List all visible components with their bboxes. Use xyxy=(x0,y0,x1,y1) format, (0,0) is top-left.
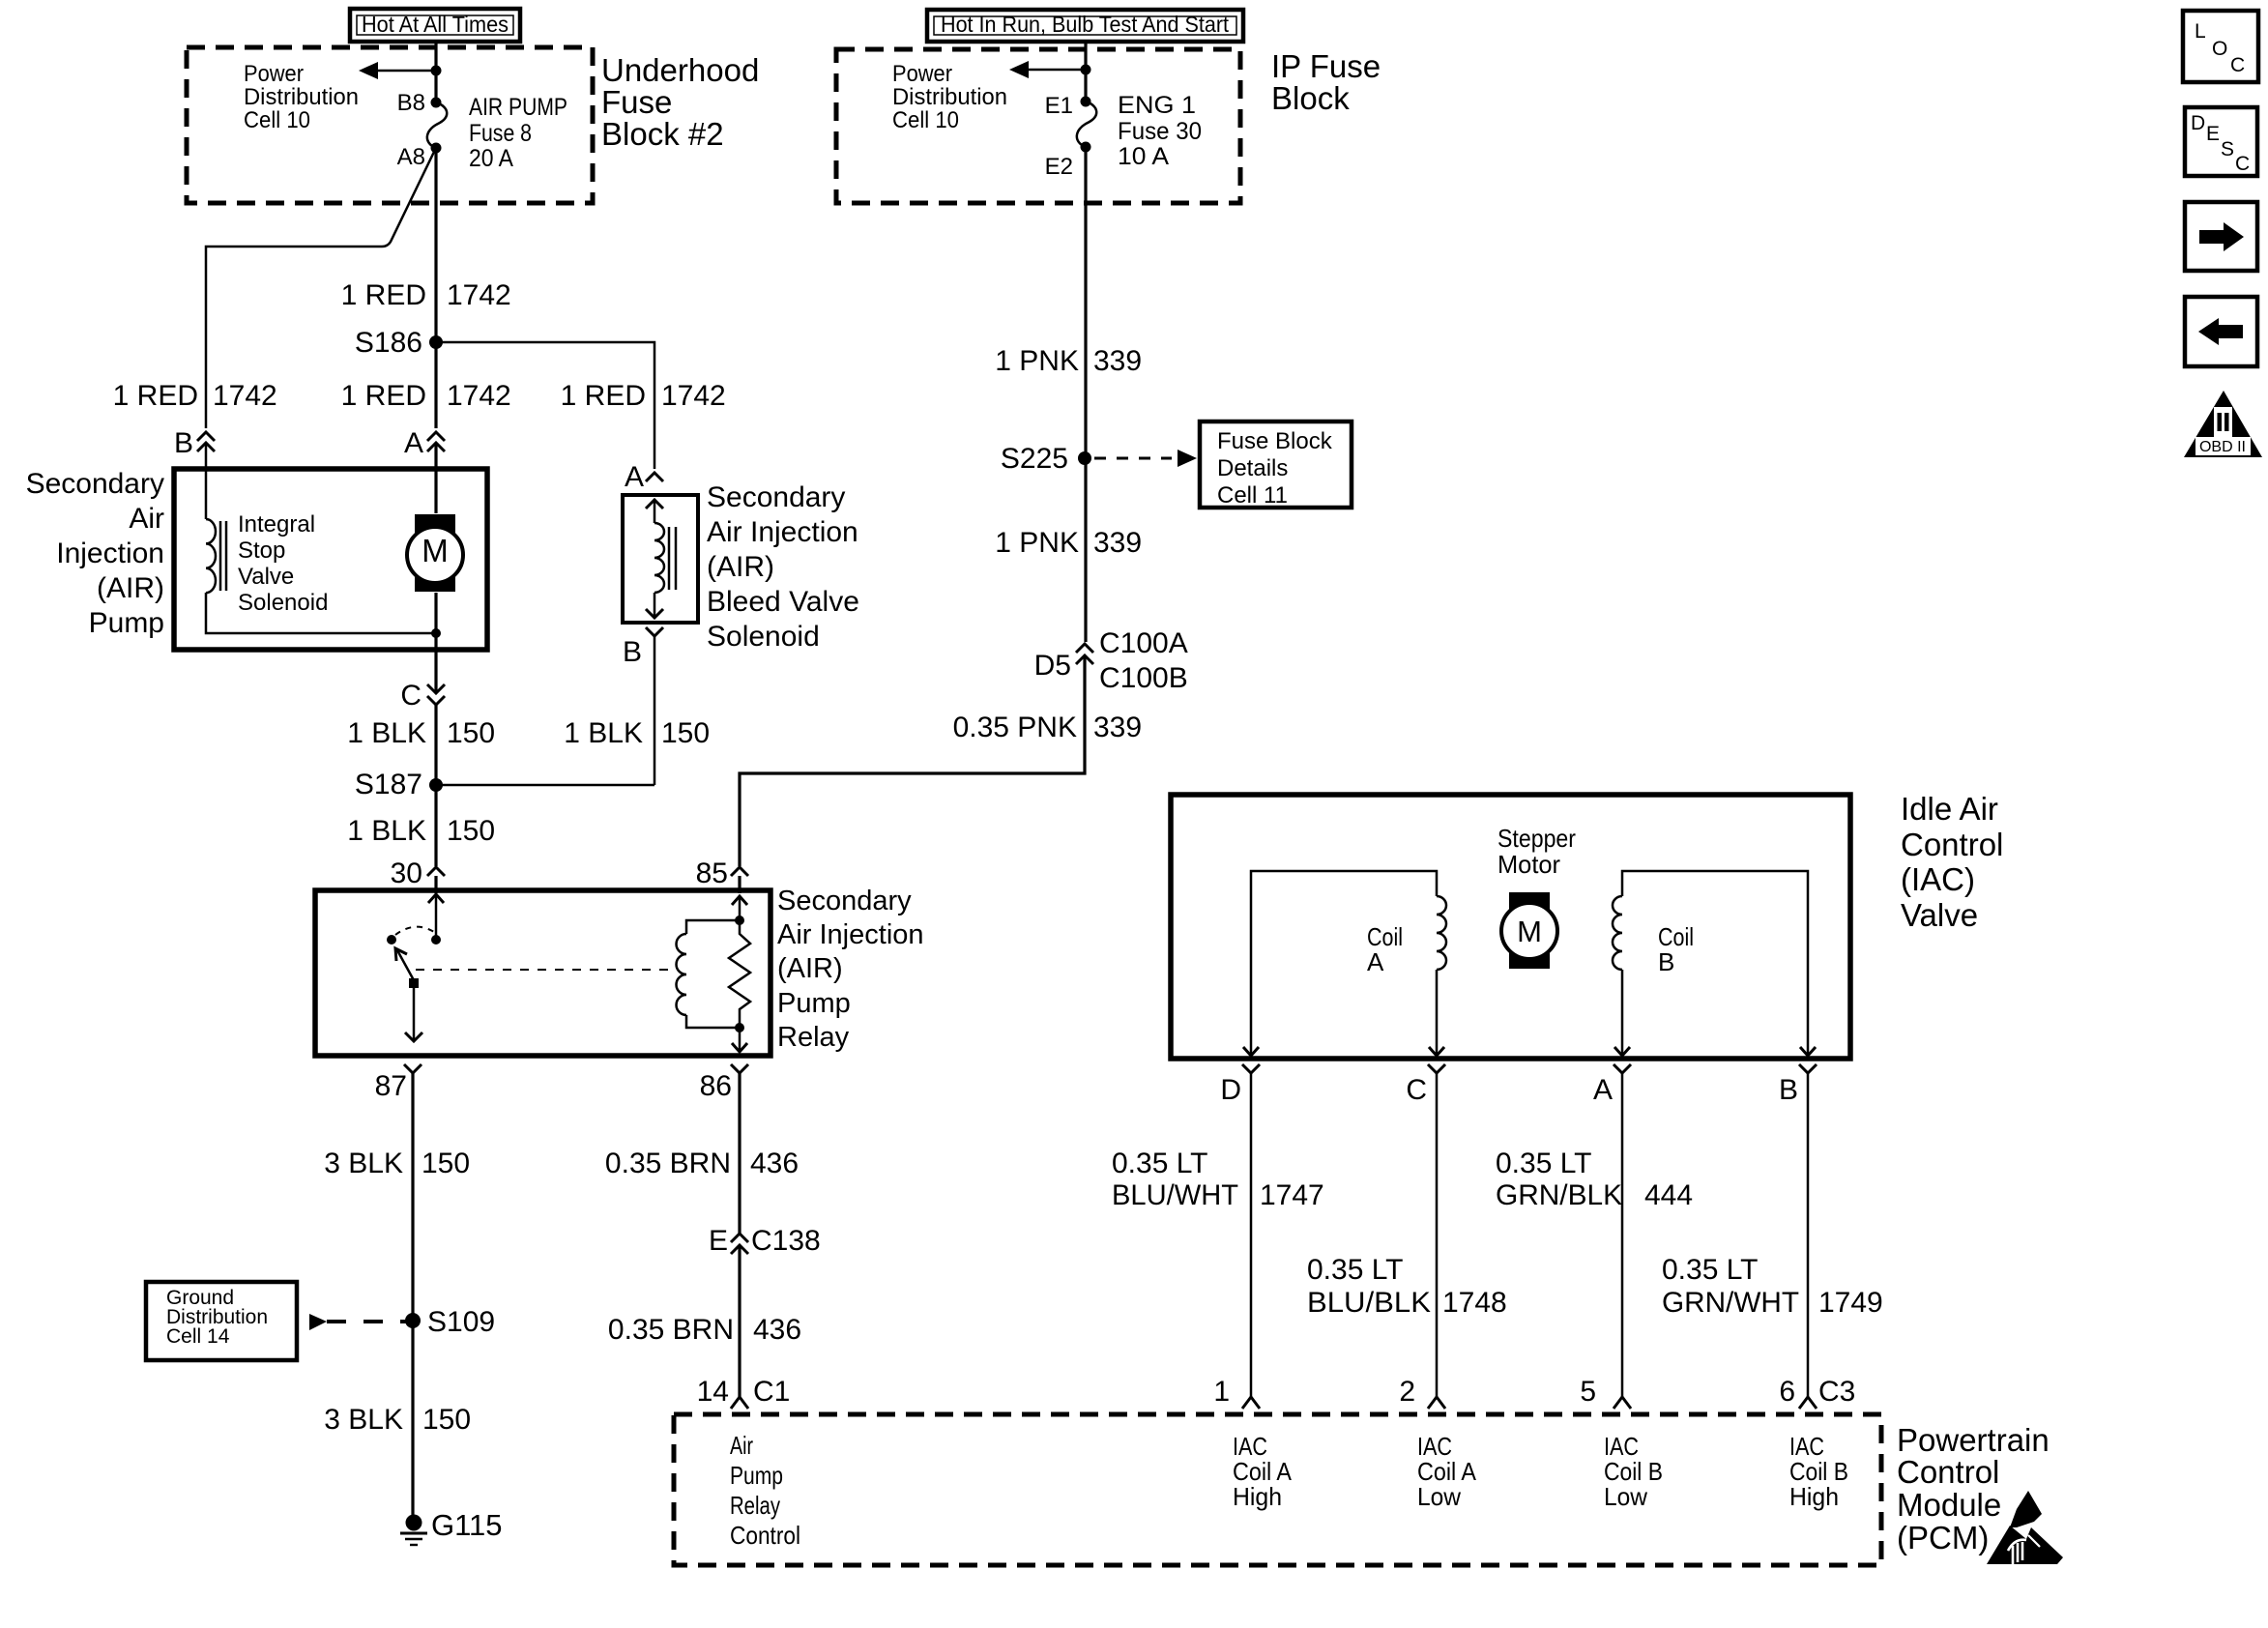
svg-text:0.35 LT: 0.35 LT xyxy=(1307,1254,1404,1286)
svg-text:BLU/BLK: BLU/BLK xyxy=(1307,1287,1431,1319)
svg-text:Injection: Injection xyxy=(56,538,164,569)
svg-text:Control: Control xyxy=(1897,1454,1999,1490)
svg-text:(IAC): (IAC) xyxy=(1901,861,1975,897)
svg-text:0.35 LT: 0.35 LT xyxy=(1112,1148,1208,1179)
svg-text:14: 14 xyxy=(697,1376,729,1408)
svg-text:G115: G115 xyxy=(431,1508,503,1542)
svg-text:C3: C3 xyxy=(1818,1376,1855,1408)
svg-text:Motor: Motor xyxy=(1497,850,1560,879)
svg-text:3 BLK: 3 BLK xyxy=(324,1148,403,1179)
svg-text:436: 436 xyxy=(750,1148,799,1179)
svg-text:S186: S186 xyxy=(355,327,422,359)
svg-text:Control: Control xyxy=(1901,827,2003,862)
svg-text:Powertrain: Powertrain xyxy=(1897,1422,2050,1458)
svg-text:1747: 1747 xyxy=(1260,1179,1324,1211)
svg-text:1 RED: 1 RED xyxy=(561,380,646,412)
svg-text:Cell 10: Cell 10 xyxy=(892,107,959,133)
svg-text:(AIR): (AIR) xyxy=(707,551,774,583)
svg-text:1742: 1742 xyxy=(213,380,277,412)
svg-text:S225: S225 xyxy=(1001,443,1068,475)
svg-text:1748: 1748 xyxy=(1442,1287,1507,1319)
svg-text:87: 87 xyxy=(375,1070,407,1102)
svg-text:1749: 1749 xyxy=(1818,1287,1883,1319)
svg-text:High: High xyxy=(1789,1482,1839,1511)
svg-text:1 BLK: 1 BLK xyxy=(564,717,643,749)
svg-text:5: 5 xyxy=(1580,1376,1596,1408)
svg-text:1 BLK: 1 BLK xyxy=(347,815,426,847)
svg-text:2: 2 xyxy=(1399,1376,1415,1408)
svg-text:Distribution: Distribution xyxy=(892,84,1007,110)
svg-text:10 A: 10 A xyxy=(1118,143,1169,170)
svg-text:Air: Air xyxy=(730,1431,753,1460)
svg-text:0.35 LT: 0.35 LT xyxy=(1496,1148,1592,1179)
svg-text:1 RED: 1 RED xyxy=(113,380,198,412)
svg-text:A8: A8 xyxy=(397,144,425,170)
svg-text:86: 86 xyxy=(700,1070,732,1102)
svg-text:GRN/BLK: GRN/BLK xyxy=(1496,1179,1622,1211)
svg-text:(AIR): (AIR) xyxy=(97,572,164,604)
svg-text:0.35 PNK: 0.35 PNK xyxy=(953,712,1077,743)
svg-text:Secondary: Secondary xyxy=(777,886,912,916)
svg-text:Integral: Integral xyxy=(238,511,315,538)
svg-text:C: C xyxy=(1406,1074,1427,1106)
svg-text:0.35 LT: 0.35 LT xyxy=(1662,1254,1759,1286)
svg-text:OBD II: OBD II xyxy=(2199,439,2246,455)
svg-text:1742: 1742 xyxy=(661,380,726,412)
svg-text:C: C xyxy=(2230,54,2245,76)
svg-text:Details: Details xyxy=(1217,455,1288,481)
svg-text:1742: 1742 xyxy=(447,380,511,412)
svg-text:L: L xyxy=(2195,20,2206,43)
svg-text:Cell 11: Cell 11 xyxy=(1217,482,1288,509)
svg-text:339: 339 xyxy=(1093,712,1142,743)
svg-text:B: B xyxy=(1779,1074,1798,1106)
svg-text:E: E xyxy=(709,1225,728,1257)
svg-text:1 RED: 1 RED xyxy=(341,380,426,412)
svg-text:Pump: Pump xyxy=(89,607,164,639)
svg-text:A: A xyxy=(625,461,644,493)
svg-text:A: A xyxy=(404,427,423,459)
svg-text:1: 1 xyxy=(1213,1376,1230,1408)
svg-text:C138: C138 xyxy=(751,1225,821,1257)
svg-text:Air Injection: Air Injection xyxy=(707,516,858,548)
svg-text:M: M xyxy=(422,533,449,568)
svg-text:339: 339 xyxy=(1093,527,1142,559)
svg-text:Secondary: Secondary xyxy=(26,468,164,500)
svg-text:Fuse Block: Fuse Block xyxy=(1217,428,1333,454)
svg-text:High: High xyxy=(1233,1482,1282,1511)
svg-text:C1: C1 xyxy=(753,1376,790,1408)
svg-text:444: 444 xyxy=(1644,1179,1693,1211)
svg-text:B: B xyxy=(623,636,642,668)
svg-text:C: C xyxy=(400,680,422,712)
svg-text:Relay: Relay xyxy=(730,1491,780,1520)
svg-text:Block: Block xyxy=(1271,80,1350,116)
svg-text:B8: B8 xyxy=(397,90,425,116)
svg-text:O: O xyxy=(2212,38,2227,60)
svg-text:1 PNK: 1 PNK xyxy=(995,345,1079,377)
svg-text:Stepper: Stepper xyxy=(1497,824,1576,853)
svg-text:150: 150 xyxy=(447,815,495,847)
svg-text:Power: Power xyxy=(892,61,952,87)
svg-text:6: 6 xyxy=(1779,1376,1795,1408)
svg-text:150: 150 xyxy=(661,717,710,749)
svg-text:Air Injection: Air Injection xyxy=(777,919,924,950)
svg-text:Valve: Valve xyxy=(238,564,294,590)
svg-text:Relay: Relay xyxy=(777,1022,850,1053)
svg-text:Pump: Pump xyxy=(777,988,851,1019)
svg-text:1 RED: 1 RED xyxy=(341,279,426,311)
svg-text:Block #2: Block #2 xyxy=(601,116,724,152)
svg-text:Low: Low xyxy=(1417,1482,1461,1511)
svg-text:1 PNK: 1 PNK xyxy=(995,527,1079,559)
svg-text:C100A: C100A xyxy=(1099,627,1188,659)
svg-text:S109: S109 xyxy=(427,1306,495,1338)
svg-text:Fuse: Fuse xyxy=(601,84,672,120)
svg-text:A: A xyxy=(1367,947,1384,976)
svg-text:Idle Air: Idle Air xyxy=(1901,791,1998,827)
svg-text:436: 436 xyxy=(753,1314,801,1346)
svg-text:Cell 14: Cell 14 xyxy=(166,1325,230,1348)
svg-text:IP Fuse: IP Fuse xyxy=(1271,48,1381,84)
svg-text:Hot At All Times: Hot At All Times xyxy=(362,12,509,37)
svg-text:A: A xyxy=(1593,1074,1613,1106)
svg-text:Solenoid: Solenoid xyxy=(707,621,820,653)
svg-text:Fuse 8: Fuse 8 xyxy=(469,120,532,147)
svg-text:D: D xyxy=(1220,1074,1241,1106)
svg-text:(PCM): (PCM) xyxy=(1897,1520,1989,1555)
svg-text:1 BLK: 1 BLK xyxy=(347,717,426,749)
svg-text:Distribution: Distribution xyxy=(244,84,359,110)
svg-text:E: E xyxy=(2206,123,2220,145)
svg-text:S: S xyxy=(2221,138,2234,160)
svg-text:150: 150 xyxy=(422,1148,470,1179)
svg-text:M: M xyxy=(1517,915,1542,948)
svg-text:339: 339 xyxy=(1093,345,1142,377)
svg-text:150: 150 xyxy=(422,1404,471,1436)
svg-text:B: B xyxy=(174,427,193,459)
svg-text:(AIR): (AIR) xyxy=(777,953,843,984)
svg-text:30: 30 xyxy=(391,858,422,889)
svg-text:E1: E1 xyxy=(1045,93,1073,119)
svg-text:S187: S187 xyxy=(355,769,422,800)
svg-text:GRN/WHT: GRN/WHT xyxy=(1662,1287,1799,1319)
svg-text:Solenoid: Solenoid xyxy=(238,590,328,616)
svg-text:Bleed Valve: Bleed Valve xyxy=(707,586,859,618)
svg-text:B: B xyxy=(1658,947,1674,976)
svg-text:150: 150 xyxy=(447,717,495,749)
svg-text:20 A: 20 A xyxy=(469,145,513,172)
svg-text:E2: E2 xyxy=(1045,154,1073,180)
svg-text:C100B: C100B xyxy=(1099,662,1188,694)
svg-text:Module: Module xyxy=(1897,1487,2001,1523)
svg-text:Underhood: Underhood xyxy=(601,52,759,88)
svg-text:Stop: Stop xyxy=(238,538,285,564)
svg-text:ENG 1: ENG 1 xyxy=(1118,92,1196,119)
svg-text:85: 85 xyxy=(696,858,728,889)
svg-text:BLU/WHT: BLU/WHT xyxy=(1112,1179,1238,1211)
svg-text:D5: D5 xyxy=(1034,650,1071,682)
svg-text:1742: 1742 xyxy=(447,279,511,311)
svg-text:Low: Low xyxy=(1604,1482,1647,1511)
svg-text:Air: Air xyxy=(129,503,164,535)
svg-text:Cell 10: Cell 10 xyxy=(244,107,310,133)
svg-text:0.35 BRN: 0.35 BRN xyxy=(605,1148,731,1179)
svg-text:0.35 BRN: 0.35 BRN xyxy=(608,1314,734,1346)
svg-text:Power: Power xyxy=(244,61,304,87)
svg-text:Hot In Run, Bulb Test And Star: Hot In Run, Bulb Test And Start xyxy=(941,12,1230,37)
svg-text:Pump: Pump xyxy=(730,1461,783,1490)
svg-text:AIR PUMP: AIR PUMP xyxy=(469,94,567,121)
svg-text:Fuse 30: Fuse 30 xyxy=(1118,118,1202,145)
svg-text:Valve: Valve xyxy=(1901,897,1978,933)
svg-text:C: C xyxy=(2235,153,2250,175)
svg-text:3 BLK: 3 BLK xyxy=(324,1404,403,1436)
svg-text:Secondary: Secondary xyxy=(707,481,845,513)
svg-text:D: D xyxy=(2191,112,2205,134)
svg-text:Control: Control xyxy=(730,1521,800,1550)
